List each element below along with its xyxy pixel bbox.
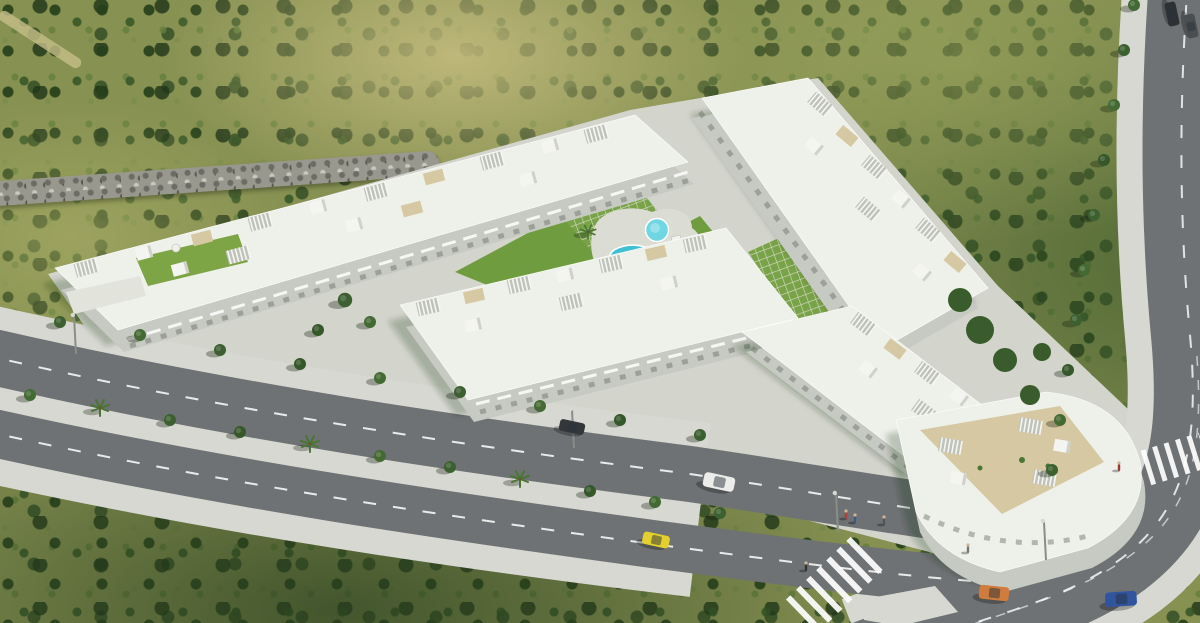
spa-pool-highlight: [650, 223, 660, 233]
terrace-parasol: [172, 244, 180, 252]
aerial-render-scene: [0, 0, 1200, 623]
site-overlay: [0, 0, 1200, 623]
